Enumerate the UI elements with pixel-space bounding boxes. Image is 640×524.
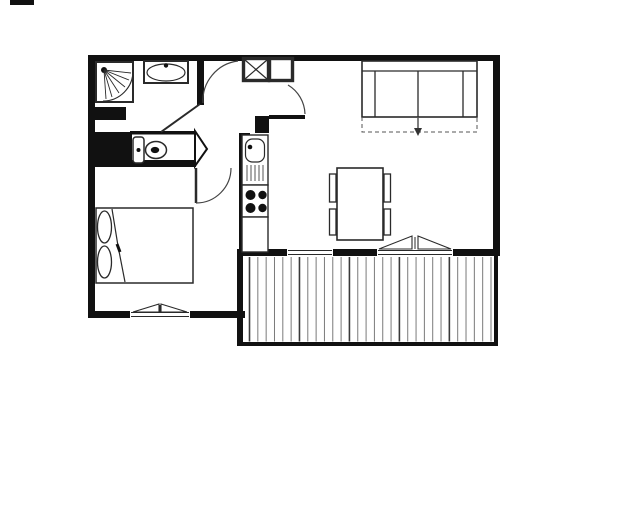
french-window-casement-left (379, 236, 412, 249)
wall-left (88, 55, 95, 318)
chair-left-bottom (330, 209, 337, 235)
wall-bedroom-balcony (237, 252, 243, 344)
chair-right-bottom (384, 209, 391, 235)
balcony-decking (250, 257, 492, 342)
french-window-casement-right (418, 236, 451, 249)
sofa-bed (362, 61, 477, 136)
wall-balcony-seg2 (333, 249, 377, 256)
pillow-left-top (98, 211, 112, 243)
wall-hall-stub (269, 115, 305, 119)
sofa-outline (362, 61, 477, 117)
bedroom-window (130, 304, 190, 318)
wall-bathroom-south (92, 107, 126, 120)
chair-left-top (330, 174, 337, 202)
wall-kitchen-chunk (255, 116, 269, 133)
closets (244, 59, 293, 81)
wall-balcony-bottom (237, 342, 498, 346)
toilet-button-icon (137, 148, 141, 152)
wall-balcony-right (494, 256, 498, 346)
bathroom-door-leaf (161, 104, 200, 132)
scan-artifact-mark (10, 0, 34, 5)
bathroom (96, 61, 238, 132)
dining-table (337, 168, 383, 240)
wall-wc-point (195, 131, 207, 166)
floor-plan-drawing (0, 0, 640, 524)
closet-box-plain (270, 59, 293, 81)
bedroom-door-swing-arc (196, 168, 231, 203)
wall-balcony-seg3 (453, 249, 500, 256)
wall-right (493, 55, 500, 256)
shower-tray (96, 62, 133, 102)
french-window (378, 236, 452, 255)
balcony (250, 257, 492, 342)
pillow-left-bottom (98, 246, 112, 278)
wc (133, 137, 167, 163)
wall-duct-block (92, 132, 132, 162)
kitchen-counter-segment (242, 217, 268, 252)
bedroom-window-casement-left (133, 304, 159, 312)
floor-plan-canvas (0, 0, 640, 524)
bathroom-door-swing-arc (203, 61, 238, 103)
kitchen (239, 133, 268, 252)
dining-set (330, 168, 391, 240)
living-room (288, 61, 477, 255)
hall-door-swing-arc (288, 85, 305, 114)
kitchen-stove-unit (242, 185, 268, 217)
bedroom (96, 168, 231, 318)
washbasin-tap-icon (164, 63, 168, 67)
kitchen-tap-icon (248, 145, 253, 150)
toilet-drain-icon (151, 147, 159, 153)
chair-right-top (384, 174, 391, 202)
bedroom-window-casement-right (161, 304, 187, 312)
kitchen-sink-bowl (246, 139, 265, 162)
living-window (288, 251, 332, 255)
